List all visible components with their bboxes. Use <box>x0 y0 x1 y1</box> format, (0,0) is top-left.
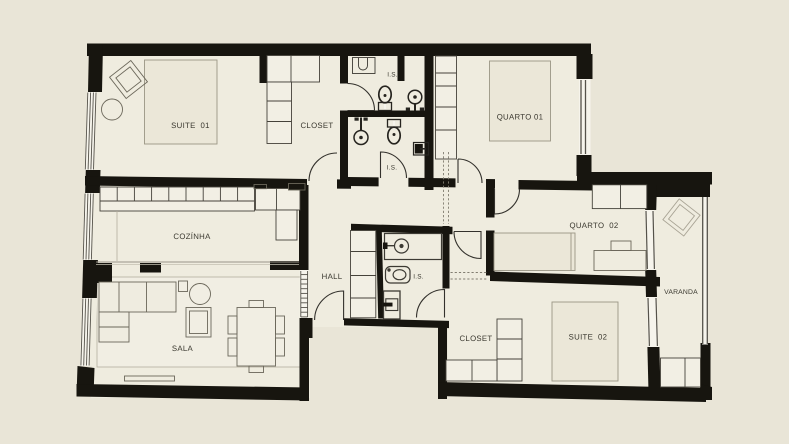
svg-text:CLOSET: CLOSET <box>301 121 334 130</box>
svg-text:CLOSET: CLOSET <box>460 334 493 343</box>
svg-text:QUARTO 02: QUARTO 02 <box>569 221 618 230</box>
svg-text:HALL: HALL <box>322 272 343 281</box>
svg-text:SUITE 01: SUITE 01 <box>171 121 210 130</box>
svg-text:SALA: SALA <box>172 344 194 353</box>
svg-text:QUARTO 01: QUARTO 01 <box>497 113 544 122</box>
svg-text:SUITE 02: SUITE 02 <box>569 333 608 342</box>
svg-text:I.S.: I.S. <box>387 165 397 172</box>
svg-text:I.S.: I.S. <box>387 72 397 79</box>
svg-text:VARANDA: VARANDA <box>664 289 698 296</box>
svg-text:COZÍNHA: COZÍNHA <box>173 232 211 241</box>
svg-text:I.S.: I.S. <box>413 274 423 281</box>
